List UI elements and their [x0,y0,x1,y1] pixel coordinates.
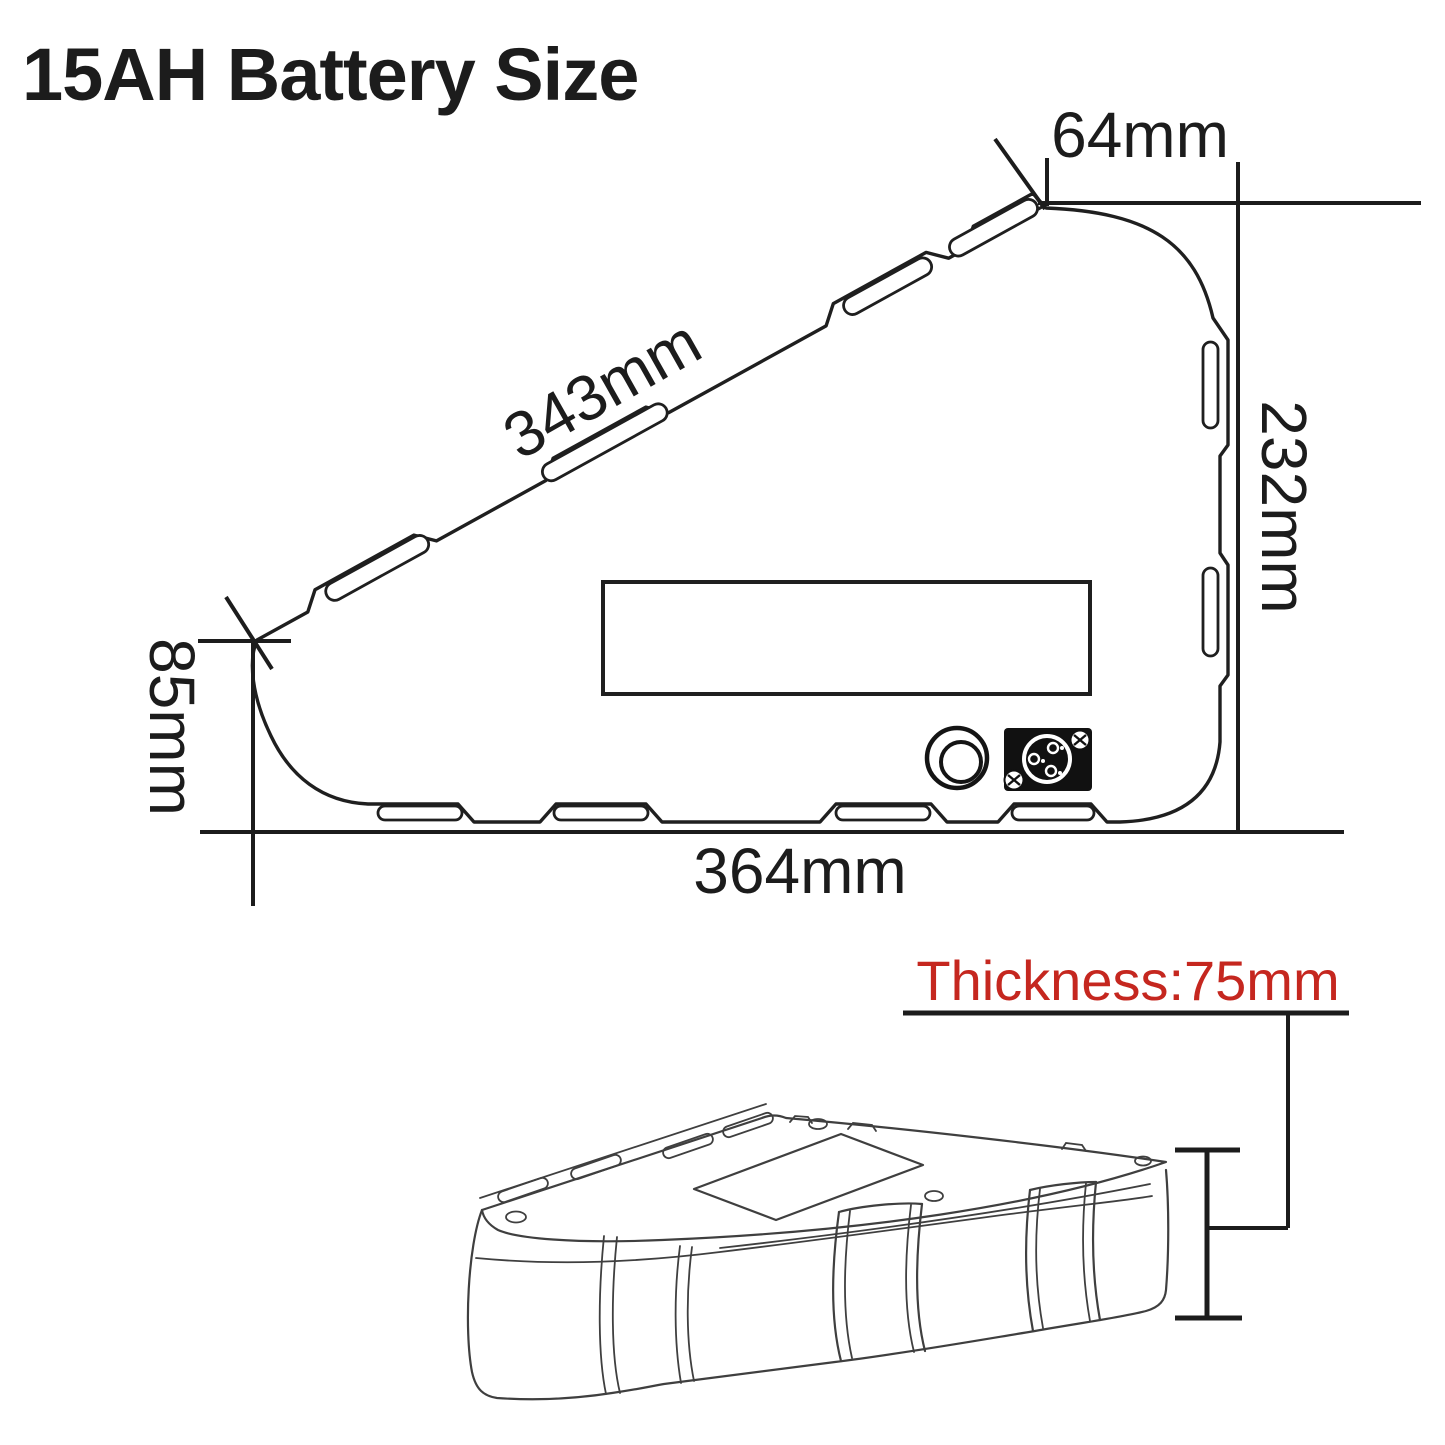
bottom-slot [554,806,648,820]
bottom-slot [1012,806,1094,820]
dimension-bottom-width: 364mm [200,832,1344,907]
iso-top-face [482,1116,1166,1242]
thickness-dimension: Thickness:75mm [903,949,1349,1318]
diagram-page: 15AH Battery Size [0,0,1445,1445]
right-slot [1203,568,1218,656]
connector-screw-icon [1005,771,1024,790]
battery-outline [252,193,1228,822]
charge-port-icon [927,728,987,788]
bottom-slot [836,806,930,820]
bottom-slot [378,806,462,820]
slant-slot [323,532,432,603]
dimension-right-height: 232mm [1238,162,1320,832]
power-connector-icon [1004,728,1092,791]
page-title: 15AH Battery Size [22,33,638,116]
slant-slot [840,255,934,318]
slant-slot [946,196,1040,259]
right-slot [1203,342,1218,428]
dim-label-top-width: 64mm [1051,99,1229,171]
battery-size-diagram: 15AH Battery Size [0,0,1445,1445]
iso-label-sticker [694,1134,923,1220]
dimension-left-height: 85mm [136,638,291,906]
iso-slot [570,1153,623,1180]
iso-band-seam [600,1236,606,1394]
iso-band-seam [688,1247,694,1381]
dim-slash-tick [995,139,1045,209]
connector-screw-icon [1071,731,1090,750]
battery-3d-view [468,1104,1168,1399]
thickness-label: Thickness:75mm [916,949,1339,1012]
iso-band-seam [676,1246,681,1383]
dim-label-right-height: 232mm [1248,400,1320,613]
battery-side-view [252,193,1228,822]
iso-screw [925,1191,943,1201]
label-plate [603,582,1090,694]
dim-label-left-height: 85mm [136,638,208,816]
dim-label-bottom-width: 364mm [693,835,906,907]
dimension-top-width: 64mm [1038,99,1421,206]
dim-slash-tick [226,597,272,669]
iso-slot [497,1176,550,1203]
iso-screw [506,1212,526,1223]
